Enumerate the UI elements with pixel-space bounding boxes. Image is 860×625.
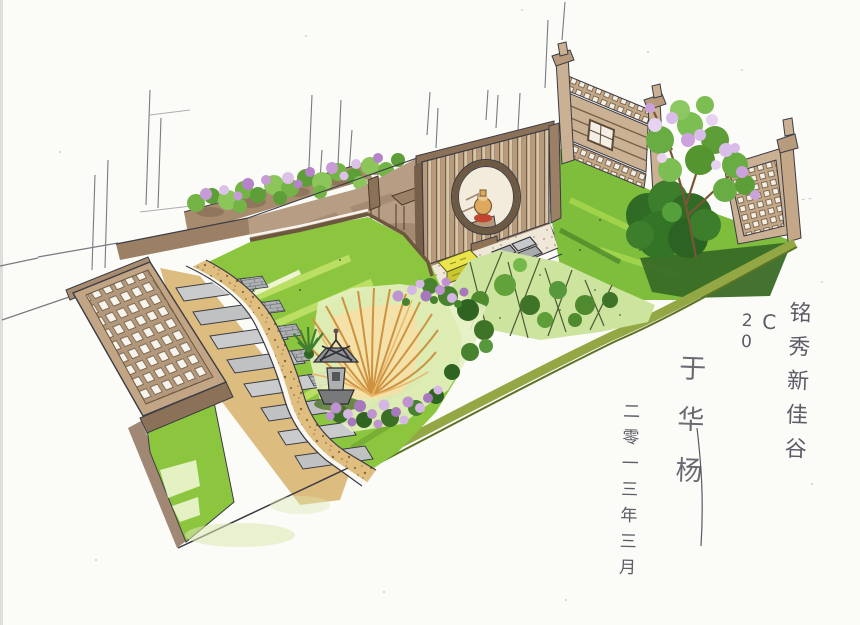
inscription-date: 二零一三年三月 [613, 402, 643, 585]
inscription-signature: 于华杨 [665, 353, 709, 507]
scanned-drawing: 铭秀新佳谷 C 20 于华杨 二零一三年三月 [0, 0, 860, 625]
inscription-title-column: 铭秀新佳谷 C 20 [732, 299, 814, 472]
inscription-project-title: 铭秀新佳谷 [780, 300, 811, 471]
garden-rendering-svg [0, 0, 860, 625]
